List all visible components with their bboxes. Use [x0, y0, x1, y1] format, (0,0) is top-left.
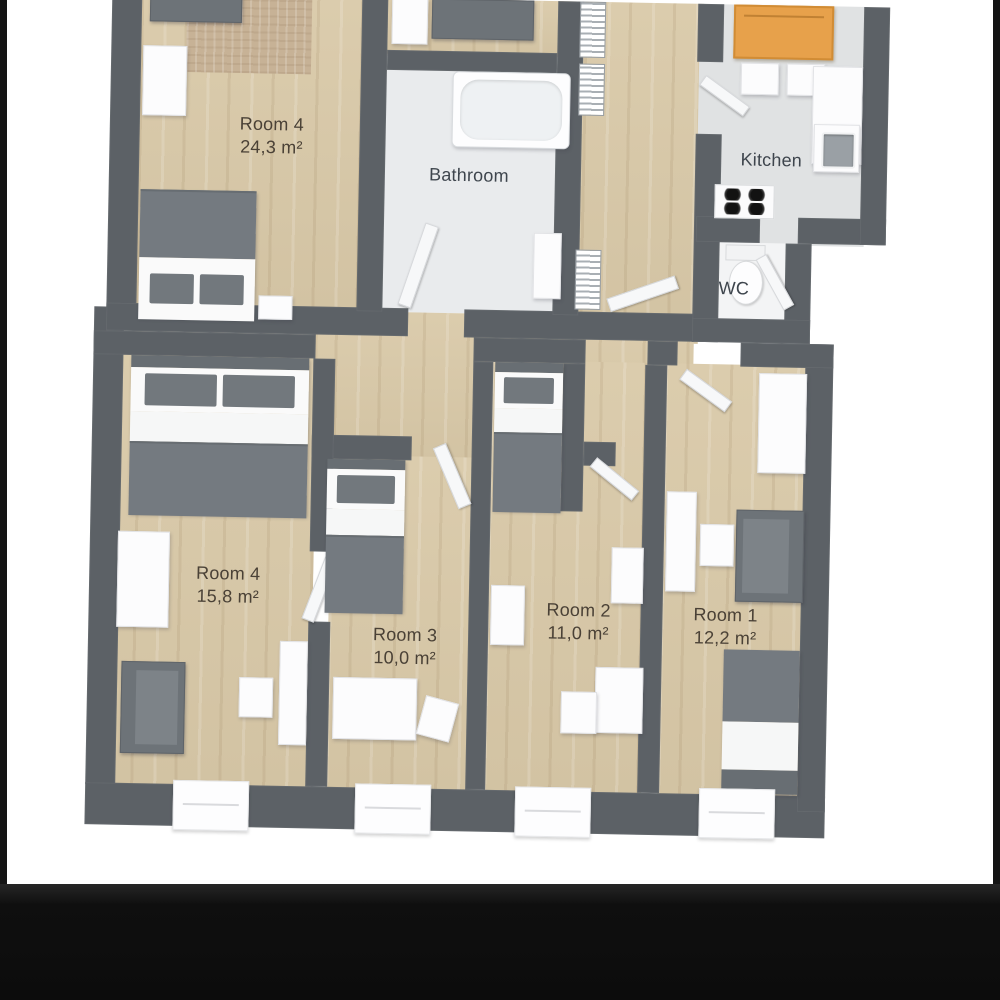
chair [699, 524, 734, 567]
top-section-wall-b [464, 309, 694, 341]
wc-label: WC [718, 277, 749, 300]
washbasin [533, 233, 562, 300]
double-bed [138, 189, 256, 319]
window [698, 788, 775, 839]
room2-label: Room 2 11,0 m² [546, 598, 611, 644]
desk [332, 677, 417, 741]
bottom-black-bar [0, 884, 1000, 1000]
desk [594, 667, 643, 734]
room2-wall-top [473, 338, 585, 364]
single-bed [493, 362, 564, 511]
bathroom-wall-top [387, 50, 557, 73]
room3-label: Room 3 10,0 m² [372, 623, 437, 669]
room-area: 11,0 m² [547, 622, 608, 643]
single-bed [325, 459, 406, 612]
double-bed [128, 355, 309, 516]
nightstand [258, 295, 292, 320]
room-name: Room 1 [693, 604, 758, 625]
dining-table [733, 4, 834, 60]
room4-small-label: Room 4 15,8 m² [195, 562, 260, 608]
kitchen-sink [821, 132, 856, 169]
cabinet [391, 0, 428, 45]
radiator [574, 249, 601, 309]
nightstand [611, 547, 644, 604]
kitchen-wall-right [860, 7, 891, 245]
wc-wall-bottom [692, 318, 810, 344]
desk [278, 641, 308, 746]
room-area: 24,3 m² [240, 136, 303, 157]
left-frame-line [0, 0, 7, 884]
room-name: Room 3 [373, 624, 438, 645]
wardrobe [116, 531, 170, 628]
wardrobe [142, 45, 187, 116]
floor-plan-image: Room 4 24,3 m² Bathroom Kitchen [0, 0, 1000, 1000]
chair [560, 691, 597, 734]
room-name: Room 4 [196, 563, 261, 584]
radiator [578, 64, 605, 116]
kitchen-label: Kitchen [740, 148, 802, 172]
dresser [150, 0, 243, 23]
desk [665, 491, 697, 592]
room-name: Room 4 [240, 114, 305, 135]
single-bed [721, 649, 800, 794]
room4-small-wall-right-b [305, 621, 330, 786]
room2-alcove-wall [561, 363, 586, 511]
room-name: Room 2 [546, 599, 611, 620]
radiator [579, 2, 606, 58]
washing-machine [432, 0, 535, 41]
outer-wall-left-top [106, 0, 142, 308]
room1-wall-top-b [740, 343, 833, 369]
stove [714, 184, 775, 219]
room-area: 15,8 m² [196, 585, 259, 606]
chair [238, 677, 273, 718]
room1-wall-top-a [647, 341, 677, 366]
room1-label: Room 1 12,2 m² [693, 603, 758, 649]
room-name: WC [718, 278, 749, 299]
wardrobe [757, 373, 807, 474]
room4-small-wall-top [93, 330, 315, 358]
side-table [490, 585, 525, 646]
kitchen-wall-bottom-a [696, 216, 760, 243]
room-name: Kitchen [740, 149, 802, 170]
room-area: 12,2 m² [694, 627, 757, 648]
bathroom-label: Bathroom [429, 163, 509, 187]
bathtub [451, 71, 570, 149]
room-name: Bathroom [429, 164, 509, 186]
window [354, 783, 431, 834]
floor-plan: Room 4 24,3 m² Bathroom Kitchen [0, 0, 1000, 1000]
sofa [735, 510, 805, 603]
room-area: 10,0 m² [373, 647, 436, 668]
right-frame-line [993, 0, 1000, 884]
chair [741, 63, 780, 96]
window [514, 786, 591, 837]
room4-large-label: Room 4 24,3 m² [239, 113, 304, 159]
window [172, 780, 249, 831]
kitchen-wall-left-a [697, 4, 724, 62]
sofa [120, 661, 186, 754]
